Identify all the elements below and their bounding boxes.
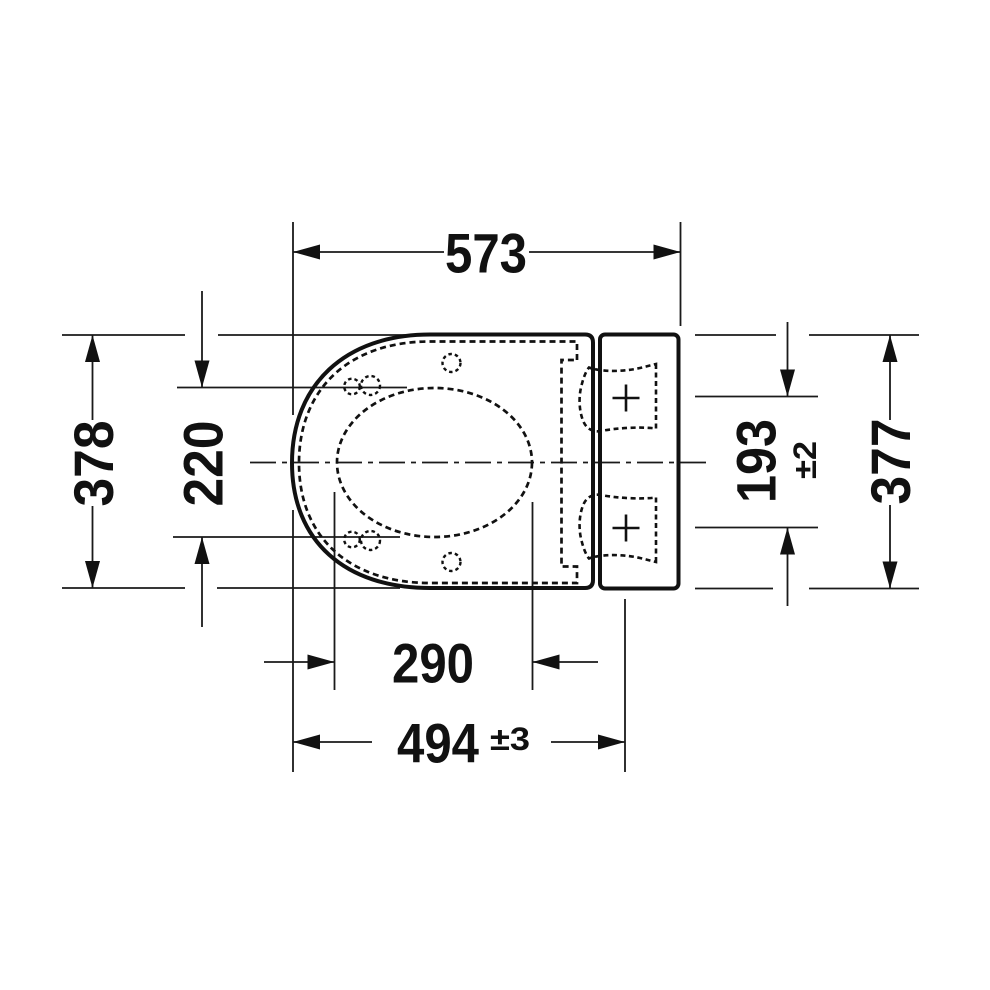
dim-top-width-label: 573 (445, 222, 527, 285)
dim-mount-spacing: 193 ±2 (725, 322, 824, 606)
dim-opening-width-label: 290 (392, 632, 474, 695)
bumper-hole-bottom (443, 553, 461, 571)
bumper-hole-top (443, 354, 461, 372)
hinge-hole-bottom-right (361, 531, 380, 550)
hinge-hole-bottom-left (344, 532, 360, 548)
dim-top-width: 573 (293, 222, 681, 285)
mounting-cross-top (613, 385, 640, 412)
dimension-drawing: 573 378 220 193 ±2 377 290 (0, 0, 990, 990)
dim-opening-width: 290 (264, 632, 598, 695)
dim-mount-distance: 494 ±3 (293, 712, 625, 775)
hinge-hole-top-left (344, 379, 360, 395)
technical-drawing-canvas: 573 378 220 193 ±2 377 290 (0, 0, 990, 990)
dim-mount-spacing-tolerance: ±2 (787, 441, 823, 479)
dim-mount-distance-tolerance: ±3 (490, 721, 530, 757)
hinge-hole-top-right (361, 376, 380, 395)
dim-mount-distance-label: 494 (397, 712, 479, 775)
dim-seat-depth: 378 (62, 335, 125, 588)
dim-plate-depth: 377 (859, 335, 922, 589)
dim-opening-depth-label: 220 (172, 421, 235, 507)
dim-plate-depth-label: 377 (859, 419, 922, 505)
dim-seat-depth-label: 378 (62, 421, 125, 507)
dim-mount-spacing-label: 193 (725, 419, 788, 503)
mounting-plate-outline (600, 335, 679, 589)
dim-opening-depth: 220 (172, 291, 235, 627)
mounting-cross-bottom (613, 515, 640, 542)
